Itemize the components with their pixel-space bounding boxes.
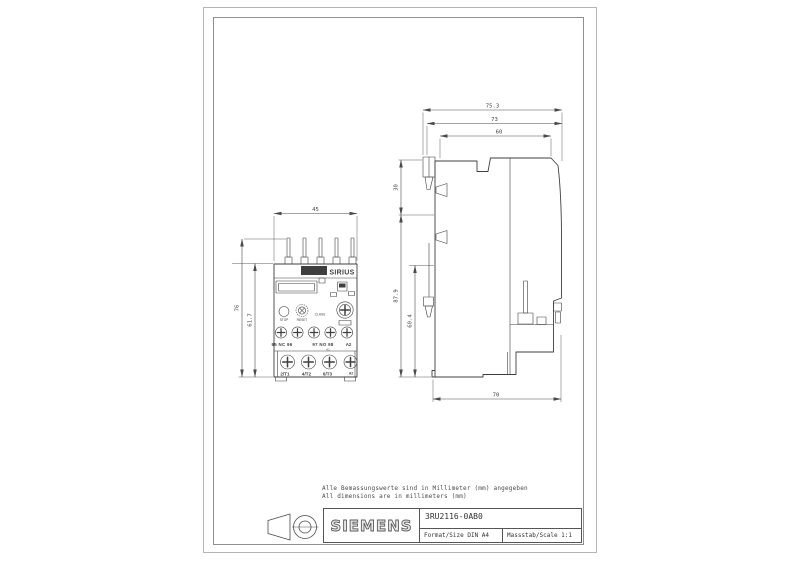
aux-terminal-label-a2: A2 [346, 342, 352, 347]
dim-bottom-depth: 70 [493, 393, 500, 399]
note-line-en: All dimensions are in millimeters (mm) [322, 493, 528, 501]
class-label: CLASS [315, 313, 325, 317]
din-clip-top [423, 157, 435, 190]
dim-total-depth: 75.3 [486, 104, 499, 110]
mounting-pins [285, 238, 356, 264]
side-view-dimensions: 75.3 73 60 30 87.9 60.4 [394, 104, 563, 403]
plunger-detail [510, 281, 554, 325]
test-slider [338, 282, 348, 291]
dimension-drawing: SIEMENS SIRIUS STOP [0, 0, 800, 566]
din-clip-bottom [424, 243, 434, 317]
title-block-brand-cell: SIEMENS [324, 509, 420, 542]
front-view: SIEMENS SIRIUS STOP [232, 207, 357, 381]
dim-depth-body: 60 [496, 130, 503, 136]
stop-label: STOP [280, 318, 289, 322]
latch-wedge-upper [436, 184, 447, 197]
dim-height-body: 61.7 [248, 313, 254, 326]
main-terminal-label-t1: 2/T1 [280, 372, 290, 377]
dim-height-total: 76 [235, 305, 241, 312]
aux-terminal-label-no: 97 NO 98 [312, 342, 333, 347]
main-terminal-label-t2: 4/T2 [302, 372, 312, 377]
stop-button: STOP [279, 307, 289, 323]
dim-height-total: 87.9 [394, 289, 400, 302]
current-dial [337, 302, 353, 325]
aux-terminal-label-nc: 95 NC 96 [272, 342, 293, 347]
dim-height-lower: 60.4 [408, 314, 414, 328]
device-series-label: SIRIUS [329, 270, 354, 277]
main-terminal-label-t3: 6/T3 [323, 372, 333, 377]
side-body-outline [432, 158, 562, 377]
scale-field: Massstab/Scale 1:1 [502, 529, 581, 542]
right-latch [554, 303, 562, 323]
projection-symbol-icon [261, 503, 321, 551]
side-view: 75.3 73 60 30 87.9 60.4 [394, 104, 563, 403]
note-line-de: Alle Bemassungswerte sind in Millimeter … [322, 485, 528, 493]
aux-terminal-screws [275, 327, 352, 338]
brand-logo: SIEMENS [330, 517, 412, 535]
main-terminal-label-a2: A2 [349, 372, 353, 376]
dim-height-top: 30 [394, 184, 400, 191]
reset-button: RESET [296, 305, 308, 323]
latch-wedge-lower [436, 231, 447, 244]
front-view-dimensions: 45 76 61.7 [232, 207, 357, 377]
main-terminal-screws [281, 355, 358, 369]
title-block: SIEMENS 3RU2116-0AB0 Format/Size DIN A4 … [323, 508, 582, 543]
dimension-notes: Alle Bemassungswerte sind in Millimeter … [322, 485, 528, 500]
reset-label: RESET [297, 318, 308, 322]
dim-width: 45 [312, 207, 319, 213]
format-field: Format/Size DIN A4 [420, 529, 502, 542]
dim-depth-mid: 73 [491, 117, 498, 123]
device-brand-label: SIEMENS [306, 270, 323, 274]
drawing-sheet-page: SIEMENS SIRIUS STOP [0, 0, 800, 566]
part-number: 3RU2116-0AB0 [420, 509, 581, 529]
